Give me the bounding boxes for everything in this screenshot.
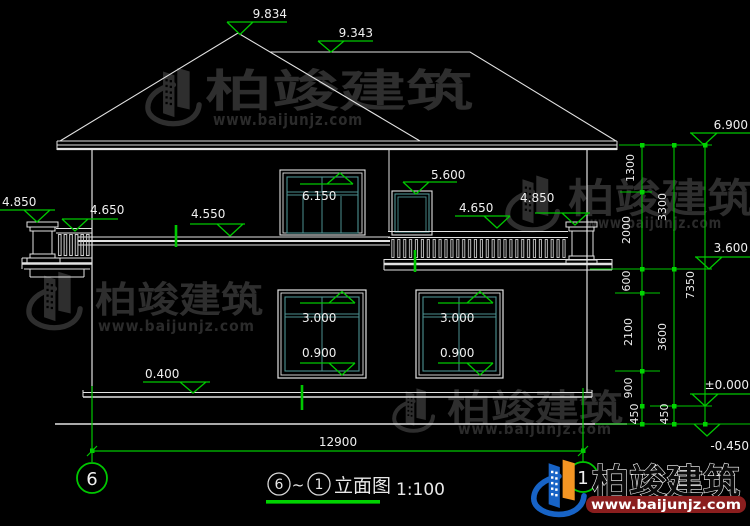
cad-drawing: 柏竣建筑 www.baijunjz.com 柏竣建筑 www.baijunjz.… [0,0,750,526]
window1-sill-level: 0.900 [302,346,336,360]
upper-window [392,191,432,235]
chain-seg-600: 600 [620,271,633,292]
watermark-bottom: 柏竣建筑 www.baijunjz.com [394,388,623,438]
level-plinth-top: 0.400 [145,367,179,381]
window2-head-level: 3.000 [440,311,474,325]
level-right-rail: 4.650 [459,201,493,215]
total-height-dim: 7350 [684,271,697,299]
footer-url: www.baijunjz.com [591,498,741,513]
elevation-drawing-canvas: 柏竣建筑 www.baijunjz.com 柏竣建筑 www.baijunjz.… [0,0,750,526]
chain-seg-450a: 450 [628,404,641,425]
watermark-left: 柏竣建筑 www.baijunjz.com [29,272,263,335]
level-right-post-cap: 4.850 [520,191,554,205]
title-caption: 立面图 [334,475,391,497]
chain-seg-2000: 2000 [620,216,633,244]
level-ground-floor: ±0.000 [705,378,749,392]
level-roof-peak: 9.834 [253,7,287,21]
level-left-rail: 4.650 [90,203,124,217]
watermark-brand: 柏竣建筑 [95,280,263,321]
total-width-dim: 12900 [319,435,357,449]
scale-label: 1:100 [396,480,445,500]
window1-head-level: 3.000 [302,311,336,325]
left-post [27,222,60,263]
level-upper-window-top: 5.600 [431,168,465,182]
watermark-url: www.baijunjz.com [586,214,722,232]
level-balcony-door-top: 6.150 [302,189,336,203]
floor-slab-band [78,237,390,245]
grid-bubble-left: 6 [77,463,107,493]
watermark-url: www.baijunjz.com [98,317,255,335]
window2-sill-level: 0.900 [440,346,474,360]
grid-bubble-left-label: 6 [86,469,97,490]
chain-seg-3600: 3600 [656,323,669,351]
chain-seg-450b: 450 [658,404,671,425]
watermark-building-icon [29,272,80,328]
chain-seg-900: 900 [622,378,635,399]
level-roof-ridge: 9.343 [339,26,373,40]
drawing-title: 6 ~ 1 立面图 1:100 [266,473,445,504]
level-left-post-cap: 4.850 [2,195,36,209]
footer-logo: 柏竣建筑 www.baijunjz.com [534,460,746,515]
chain-seg-3300: 3300 [656,193,669,221]
watermark-url: www.baijunjz.com [458,420,612,438]
level-floor-slab: 4.550 [191,207,225,221]
level-site-grade: -0.450 [710,439,749,453]
watermark-url: www.baijunjz.com [213,110,363,129]
title-underline [266,500,380,504]
level-eaves: 6.900 [714,118,748,132]
chain-seg-2100: 2100 [622,318,635,346]
walls [92,150,587,392]
grid-bubble-right-label: 1 [577,468,588,489]
title-grid-start: 6 [275,477,284,493]
level-rail-bottom: 3.600 [714,241,748,255]
chain-seg-1300: 1300 [624,154,637,182]
roof [57,33,617,150]
title-grid-end: 1 [315,477,324,493]
watermark-building-icon [148,68,199,124]
title-tilde: ~ [292,476,305,494]
